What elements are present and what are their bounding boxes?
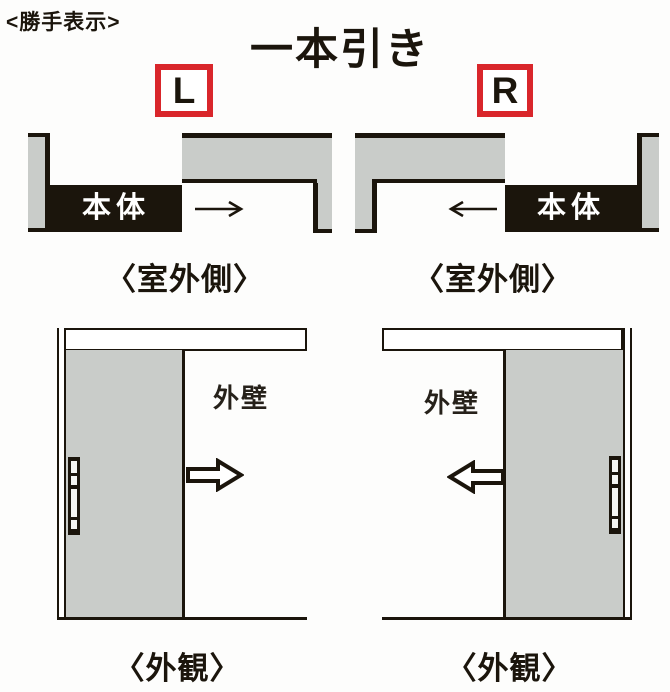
plan-r-right-jamb: [637, 133, 659, 232]
plan-r-pocket-jamb: [355, 183, 377, 233]
plan-l-pocket-wall: [182, 133, 332, 183]
elev-l-caption: 〈外観〉: [100, 643, 255, 688]
elev-r-caption: 〈外観〉: [432, 643, 587, 688]
plan-l-left-jamb: [28, 133, 50, 232]
handle-slot: [71, 520, 77, 529]
plan-r-slide-arrow-left-icon: [446, 200, 498, 218]
elev-r-door-panel: [503, 350, 623, 618]
elev-l-open-arrow-right-icon: [186, 458, 244, 492]
elev-r-sill-line: [382, 617, 632, 620]
plan-r-pocket-wall: [355, 133, 505, 183]
elev-r-door-handle: [609, 456, 621, 534]
plan-l-caption: 〈室外側〉: [105, 254, 260, 299]
handing-badge-r: R: [477, 64, 533, 117]
handle-slot: [71, 476, 77, 485]
plan-l-pocket-jamb: [313, 183, 332, 233]
sliding-door-handing-diagram: <勝手表示> 一本引き L R 本体 〈室外側〉 本体 〈室外側〉: [0, 0, 670, 692]
handle-slot: [71, 461, 77, 473]
elev-l-left-frame: [57, 328, 66, 620]
handle-slot: [612, 488, 618, 516]
plan-l-door-body: 本体: [50, 185, 182, 232]
section-label: <勝手表示>: [6, 6, 121, 36]
handing-badge-l: L: [155, 64, 213, 117]
plan-r-door-body: 本体: [505, 185, 637, 232]
elev-r-wall-label: 外壁: [424, 383, 480, 420]
elev-l-sill-line: [57, 617, 307, 620]
handing-badge-r-label: R: [492, 72, 519, 109]
plan-l-slide-arrow-right-icon: [194, 200, 246, 218]
plan-r-door-body-label: 本体: [537, 194, 605, 223]
handle-slot: [612, 519, 618, 528]
page-title: 一本引き: [225, 15, 455, 77]
elev-r-header-rail: [382, 328, 623, 351]
plan-r-pocket-wall-edge: [372, 179, 505, 183]
handle-slot: [612, 475, 618, 484]
plan-l-door-body-label: 本体: [82, 194, 150, 223]
elev-l-door-handle: [68, 457, 80, 535]
plan-l-pocket-wall-edge: [182, 179, 317, 183]
handing-badge-l-label: L: [173, 72, 196, 109]
plan-r-caption: 〈室外側〉: [413, 254, 568, 299]
elev-l-door-panel: [66, 350, 185, 618]
elev-l-header-rail: [64, 328, 307, 351]
handle-slot: [612, 460, 618, 472]
handle-slot: [71, 489, 77, 517]
elev-r-right-frame: [623, 328, 632, 620]
elev-l-wall-label: 外壁: [213, 378, 269, 415]
elev-r-open-arrow-left-icon: [447, 460, 505, 494]
